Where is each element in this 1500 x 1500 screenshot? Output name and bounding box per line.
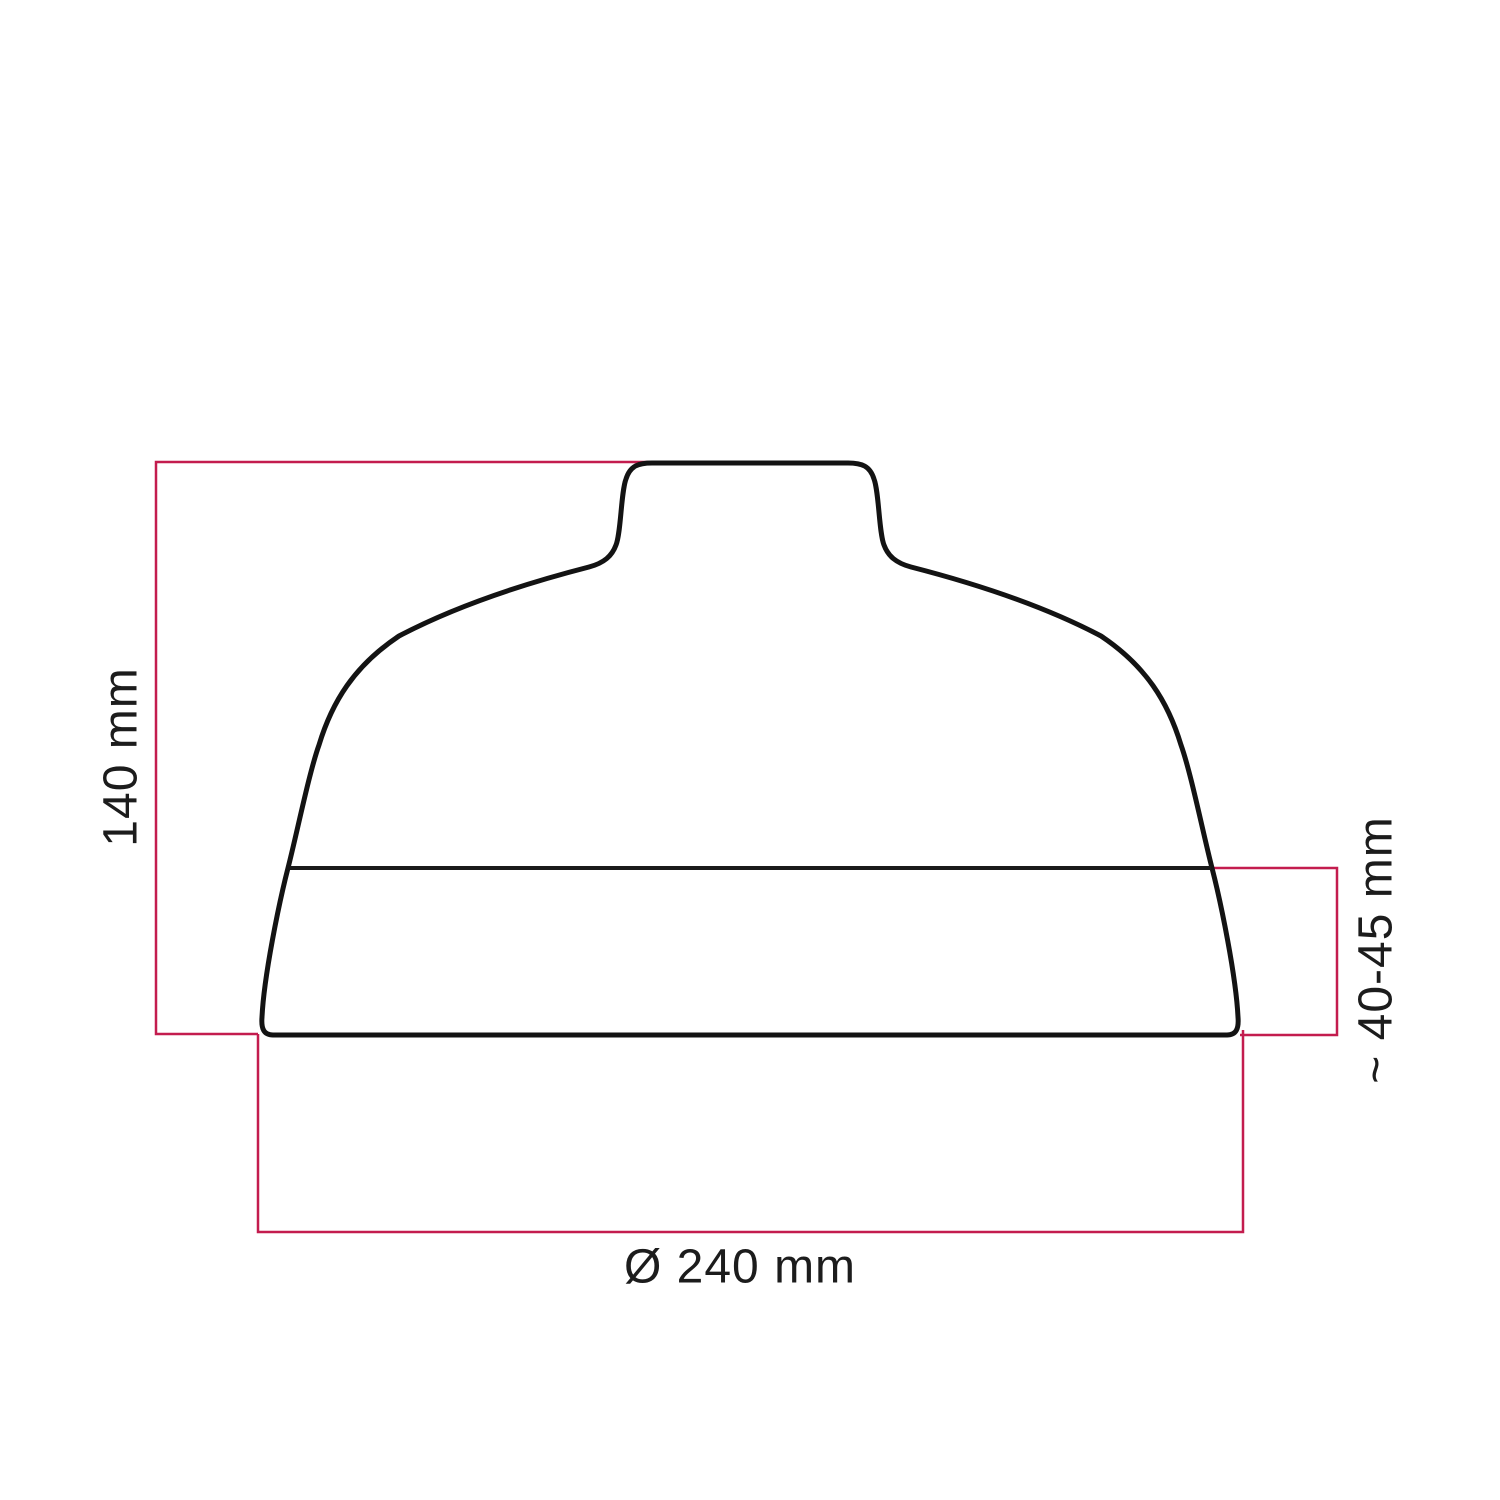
diagram-canvas: 140 mm ~ 40-45 mm Ø 240 mm bbox=[0, 0, 1500, 1500]
lampshade-outline bbox=[262, 463, 1238, 1035]
diameter-dimension-line bbox=[258, 1030, 1243, 1232]
diameter-dimension-label: Ø 240 mm bbox=[624, 1241, 856, 1294]
lampshade-dimension-diagram: 140 mm ~ 40-45 mm Ø 240 mm bbox=[0, 0, 1500, 1500]
height-dimension-line bbox=[156, 462, 650, 1034]
height-dimension-label: 140 mm bbox=[95, 667, 148, 846]
band-height-dimension-label: ~ 40-45 mm bbox=[1350, 816, 1403, 1083]
